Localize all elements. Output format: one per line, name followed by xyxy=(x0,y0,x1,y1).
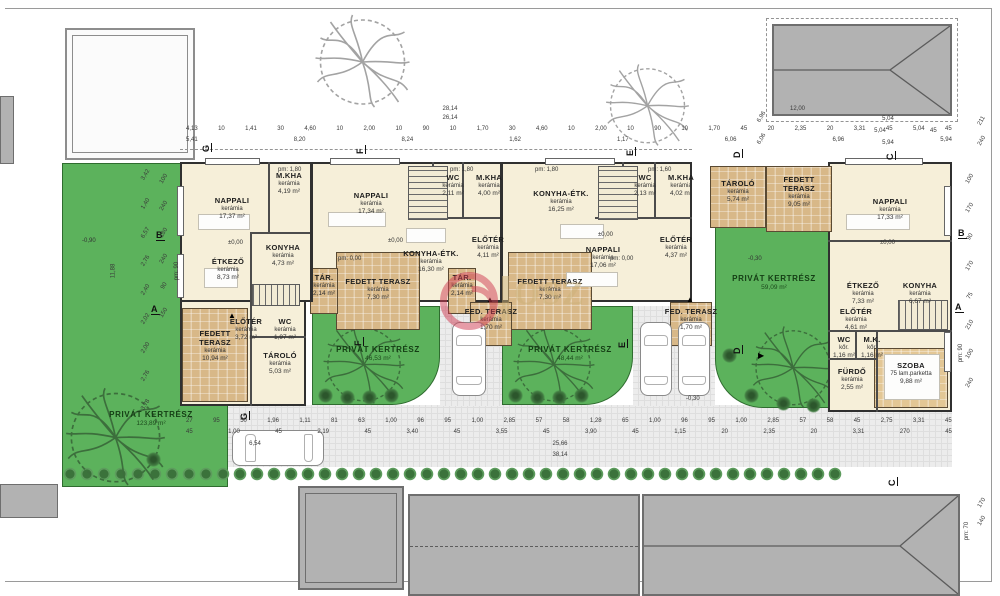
car-rear-window xyxy=(682,376,706,385)
shrub-icon xyxy=(574,388,589,403)
dim-value: 10 xyxy=(336,126,343,132)
window xyxy=(330,158,400,165)
level-zero: ±0,00 xyxy=(880,240,895,246)
dim-value: 2,85 xyxy=(767,418,779,424)
section-marker-f-top: F xyxy=(355,145,366,154)
shrub-icon xyxy=(340,390,355,405)
stairs-unit-1 xyxy=(252,284,300,306)
level-pm180: pm: 1,80 xyxy=(278,167,301,173)
dim-value: 45 xyxy=(543,429,550,435)
dim-value: 10 xyxy=(218,126,225,132)
entrance-triangle: ▶ xyxy=(758,352,764,360)
window xyxy=(205,158,260,165)
garden-label-middle-2: PRIVÁT KERTRÉSZ 48,44 m² xyxy=(512,345,628,363)
dim-value: 2,00 xyxy=(140,341,151,354)
entrance-triangle: ▲ xyxy=(686,296,694,304)
dim-chain-bottom-2: 451,00452,19453,40453,55453,90451,15202,… xyxy=(186,429,952,435)
dim-left-total: 11,88 xyxy=(110,264,116,279)
dim-value: 81 xyxy=(331,418,338,424)
dim-value: 20 xyxy=(721,429,728,435)
dim-total-top-1: 28,14 xyxy=(300,106,600,112)
section-marker-c-bottom: C xyxy=(887,477,898,486)
dim-value: 45 xyxy=(740,126,747,132)
car-windshield xyxy=(644,335,668,346)
garden-label-right: PRIVÁT KERTRÉSZ 59,09 m² xyxy=(718,274,830,292)
dim-value: 45 xyxy=(275,429,282,435)
dim-right-upper-1: 5,04 xyxy=(832,116,944,122)
dim-value: 1,00 xyxy=(228,429,240,435)
section-marker-e-garden: E xyxy=(617,339,628,348)
shrub-icon xyxy=(146,452,161,467)
dim-value: 63 xyxy=(358,418,365,424)
stairs-unit-3 xyxy=(598,166,638,220)
shrub-icon xyxy=(552,390,567,405)
dim-value: 240 xyxy=(159,200,169,212)
tarolo-unit-4 xyxy=(710,166,766,228)
dim-value: 240 xyxy=(965,377,975,389)
car xyxy=(452,322,486,396)
dim-value: 1,70 xyxy=(477,126,489,132)
dim-value: 4,60 xyxy=(304,126,316,132)
section-marker-d-top: D xyxy=(732,149,743,158)
stairs-unit-2 xyxy=(408,166,448,220)
site-plan-drawing: ▲ ▲ ▲ ▶ NAPPALI kerámia 17,37 m² M.KHA k… xyxy=(0,0,1000,596)
level-pm000: pm: 0,00 xyxy=(610,256,633,262)
neighbor-building-bottom-small xyxy=(298,486,404,590)
dim-value: 3,90 xyxy=(585,429,597,435)
dim-value: 2,40 xyxy=(140,283,151,296)
dim-value: 2,76 xyxy=(140,255,151,268)
level-zero: ±0,00 xyxy=(598,232,613,238)
dim-value: 1,41 xyxy=(245,126,257,132)
neighbor-wall-left xyxy=(0,96,14,164)
car-rear-window xyxy=(456,376,482,385)
car xyxy=(232,430,324,466)
dim-value: 170 xyxy=(965,202,975,214)
dim-value: 45 xyxy=(945,418,952,424)
party-wall xyxy=(500,162,503,302)
level-zero: ±0,00 xyxy=(388,238,403,244)
dim-right-upper-2: 5,04 xyxy=(832,128,928,134)
dim-value: 10 xyxy=(568,126,575,132)
dim-bottom-total-2: 25,66 xyxy=(500,441,620,447)
dim-value: 270 xyxy=(900,429,910,435)
dim-value: 1,70 xyxy=(708,126,720,132)
level-minus-030: -0,30 xyxy=(686,396,700,402)
dim-value: 95 xyxy=(708,418,715,424)
sofa xyxy=(846,214,910,230)
dim-right-upper-2b: 45 xyxy=(930,128,937,134)
section-marker-f-garden: F xyxy=(353,337,364,346)
dim-value: 3,31 xyxy=(853,429,865,435)
neighbor-building-bottom-right xyxy=(642,494,960,596)
level-pm000: pm: 0,00 xyxy=(338,256,361,262)
car-rear-window xyxy=(644,376,668,385)
dim-value: 27 xyxy=(186,418,193,424)
car-windshield xyxy=(682,335,706,346)
dining-table xyxy=(204,268,238,288)
shrub-icon xyxy=(318,388,333,403)
dim-value: 1,62 xyxy=(509,137,521,143)
dim-value: 57 xyxy=(800,418,807,424)
tree-icon xyxy=(58,383,173,488)
dim-total-top-2: 26,14 xyxy=(300,115,600,121)
garden-label-middle-1: PRIVÁT KERTRÉSZ 46,53 m² xyxy=(322,345,434,363)
partition xyxy=(828,330,952,332)
dim-value: 1,40 xyxy=(140,197,151,210)
dim-value: 58 xyxy=(827,418,834,424)
neighbor-building-top-right xyxy=(772,24,952,116)
level-minus-030: -0,30 xyxy=(748,256,762,262)
dim-value: 6,06 xyxy=(756,132,767,145)
window xyxy=(177,186,184,236)
shrub-icon xyxy=(530,390,545,405)
car-rear-window xyxy=(304,434,313,462)
partition xyxy=(250,232,310,234)
dim-value: 45 xyxy=(945,429,952,435)
roof-lines xyxy=(774,26,950,114)
dim-value: 3,31 xyxy=(913,418,925,424)
dim-value: 170 xyxy=(965,261,975,273)
dim-value: 100 xyxy=(965,173,975,185)
dim-value: 1,00 xyxy=(649,418,661,424)
dim-value: 1,17 xyxy=(617,137,629,143)
dim-value: 100 xyxy=(965,348,975,360)
bed xyxy=(884,354,940,400)
dim-right-lower: 170140 xyxy=(976,500,988,524)
dining-table xyxy=(406,228,446,243)
shrub-icon xyxy=(508,388,523,403)
dim-value: 10 xyxy=(450,126,457,132)
dim-value: 1,00 xyxy=(735,418,747,424)
shrub-icon xyxy=(776,396,791,411)
shrub-icon xyxy=(806,398,821,413)
dim-value: 2,85 xyxy=(504,418,516,424)
dim-value: 8,20 xyxy=(294,137,306,143)
car-windshield xyxy=(456,335,482,346)
partition xyxy=(250,300,252,406)
dim-value: 6,06 xyxy=(725,137,737,143)
dim-bottom-total-1: 6,54 xyxy=(210,441,300,447)
neighbor-building-top-left xyxy=(65,28,195,160)
dim-value: 65 xyxy=(622,418,629,424)
dim-chain-bottom: 2795501,961,1181631,0096951,002,8557581,… xyxy=(186,418,952,424)
dim-right-block: 12,00 xyxy=(790,106,805,112)
dim-value: 10 xyxy=(627,126,634,132)
partition xyxy=(828,358,878,360)
window xyxy=(845,158,923,165)
dim-value: 2,00 xyxy=(595,126,607,132)
sofa xyxy=(566,272,618,287)
dim-value: 45 xyxy=(632,429,639,435)
dim-value: 45 xyxy=(454,429,461,435)
terrace-unit-3 xyxy=(508,252,592,330)
dim-value: 2,75 xyxy=(881,418,893,424)
dim-value: 8,24 xyxy=(402,137,414,143)
tar-unit-2 xyxy=(310,268,338,314)
dim-value: 90 xyxy=(423,126,430,132)
dim-value: 3,55 xyxy=(496,429,508,435)
dim-value: 240 xyxy=(977,135,987,147)
dim-value: 96 xyxy=(417,418,424,424)
dim-value: 180 xyxy=(159,227,169,239)
shrub-icon xyxy=(744,388,759,403)
partition xyxy=(250,336,306,338)
dim-value: 45 xyxy=(186,429,193,435)
dim-value: 90 xyxy=(654,126,661,132)
dim-value: 10 xyxy=(681,126,688,132)
car-windshield xyxy=(245,434,256,462)
dim-value: 140 xyxy=(977,515,987,527)
dim-value: 45 xyxy=(854,418,861,424)
shrub-icon xyxy=(384,388,399,403)
window xyxy=(944,332,951,372)
window xyxy=(944,186,951,236)
section-marker-c-top: C xyxy=(885,151,896,160)
roof-lines xyxy=(644,496,958,594)
dim-value: 20 xyxy=(768,126,775,132)
dim-right-side: 211240 xyxy=(976,118,988,144)
partition xyxy=(876,330,878,412)
window xyxy=(545,158,615,165)
dim-value: 6,96 xyxy=(756,110,767,123)
dim-value: 1,00 xyxy=(471,418,483,424)
level-minus-090: -0,90 xyxy=(82,238,96,244)
entrance-triangle: ▲ xyxy=(228,312,236,320)
dim-value: 6,57 xyxy=(140,226,151,239)
neighbor-building-roof-line xyxy=(72,35,188,153)
dim-value: 20 xyxy=(811,429,818,435)
tree-icon xyxy=(295,10,430,110)
dim-value: 57 xyxy=(536,418,543,424)
stairs-unit-4 xyxy=(898,300,948,330)
dim-value: 2,19 xyxy=(317,429,329,435)
level-pm180: pm: 1,80 xyxy=(450,167,473,173)
tree-icon xyxy=(748,322,838,410)
dim-value: 5,41 xyxy=(186,137,198,143)
ridge-dashed xyxy=(410,546,638,547)
dim-value: 90 xyxy=(966,233,975,242)
dim-chain-left: 3,421,406,572,762,402,022,002,763,78 xyxy=(140,172,152,408)
site-boundary-right xyxy=(991,8,992,582)
sofa xyxy=(328,212,386,227)
dim-right-upper-3: 5,94 xyxy=(832,140,944,146)
dim-value: 1,96 xyxy=(267,418,279,424)
dim-value: 96 xyxy=(681,418,688,424)
dim-value: 2,00 xyxy=(363,126,375,132)
entrance-triangle: ▲ xyxy=(486,296,494,304)
dim-value: 1,00 xyxy=(385,418,397,424)
dim-value: 210 xyxy=(965,319,975,331)
dim-value: 58 xyxy=(563,418,570,424)
dim-value: 50 xyxy=(240,418,247,424)
dim-value: 30 xyxy=(509,126,516,132)
section-marker-e-top: E xyxy=(625,147,636,156)
dim-value: 4,13 xyxy=(186,126,198,132)
neighbor-wall-bottom-left xyxy=(0,484,58,518)
eaves-dashed-main xyxy=(180,149,692,150)
dim-value: 3,40 xyxy=(407,429,419,435)
dim-value: 45 xyxy=(945,126,952,132)
level-pm180: pm: 1,80 xyxy=(535,167,558,173)
neighbor-building-roof-line xyxy=(305,493,397,583)
level-pm70: pm: 70 xyxy=(964,522,970,540)
section-marker-a-right: A xyxy=(955,302,964,313)
section-marker-d-garden: D xyxy=(732,345,743,354)
dim-value: 1,15 xyxy=(674,429,686,435)
dim-value: 1,11 xyxy=(299,418,310,424)
dim-value: 2,35 xyxy=(763,429,775,435)
car xyxy=(678,322,710,396)
level-pm160: pm: 1,60 xyxy=(648,167,671,173)
dim-value: 2,76 xyxy=(140,370,151,383)
dim-value: 1,28 xyxy=(590,418,602,424)
dim-value: 75 xyxy=(966,291,975,300)
neighbor-building-bottom-middle xyxy=(408,494,640,596)
dim-value: 4,60 xyxy=(536,126,548,132)
terrace-unit-4 xyxy=(766,166,832,232)
dim-right-mid: 6,966,06 xyxy=(756,114,768,142)
dim-value: 240 xyxy=(159,254,169,266)
site-boundary-top xyxy=(5,8,992,9)
dim-value: 170 xyxy=(977,497,987,509)
tree-icon xyxy=(585,60,710,148)
party-wall xyxy=(310,162,313,302)
dim-value: 10 xyxy=(396,126,403,132)
dim-left-windows: 10024018024090150 xyxy=(158,176,170,316)
dim-value: 90 xyxy=(160,282,169,291)
hedge-row xyxy=(62,466,842,482)
partition xyxy=(855,332,857,358)
terrace-unit-2 xyxy=(336,252,420,330)
dim-value: 45 xyxy=(364,429,371,435)
dim-bottom-total-3: 38,14 xyxy=(500,452,620,458)
dim-value: 2,35 xyxy=(795,126,807,132)
sofa xyxy=(198,214,250,230)
dim-value: 2,02 xyxy=(140,312,151,325)
dim-value: 95 xyxy=(213,418,220,424)
dim-value: 95 xyxy=(444,418,451,424)
partition xyxy=(268,162,270,232)
section-marker-g-top: G xyxy=(201,143,212,152)
dim-value: 30 xyxy=(277,126,284,132)
level-pm90: pm: 90 xyxy=(174,262,180,280)
dim-value: 211 xyxy=(977,115,987,126)
level-zero: ±0,00 xyxy=(228,240,243,246)
car xyxy=(640,322,672,396)
terrace-unit-1 xyxy=(182,308,248,402)
shrub-icon xyxy=(362,390,377,405)
dim-right-windows: 1001709017075210100240 xyxy=(964,176,976,386)
